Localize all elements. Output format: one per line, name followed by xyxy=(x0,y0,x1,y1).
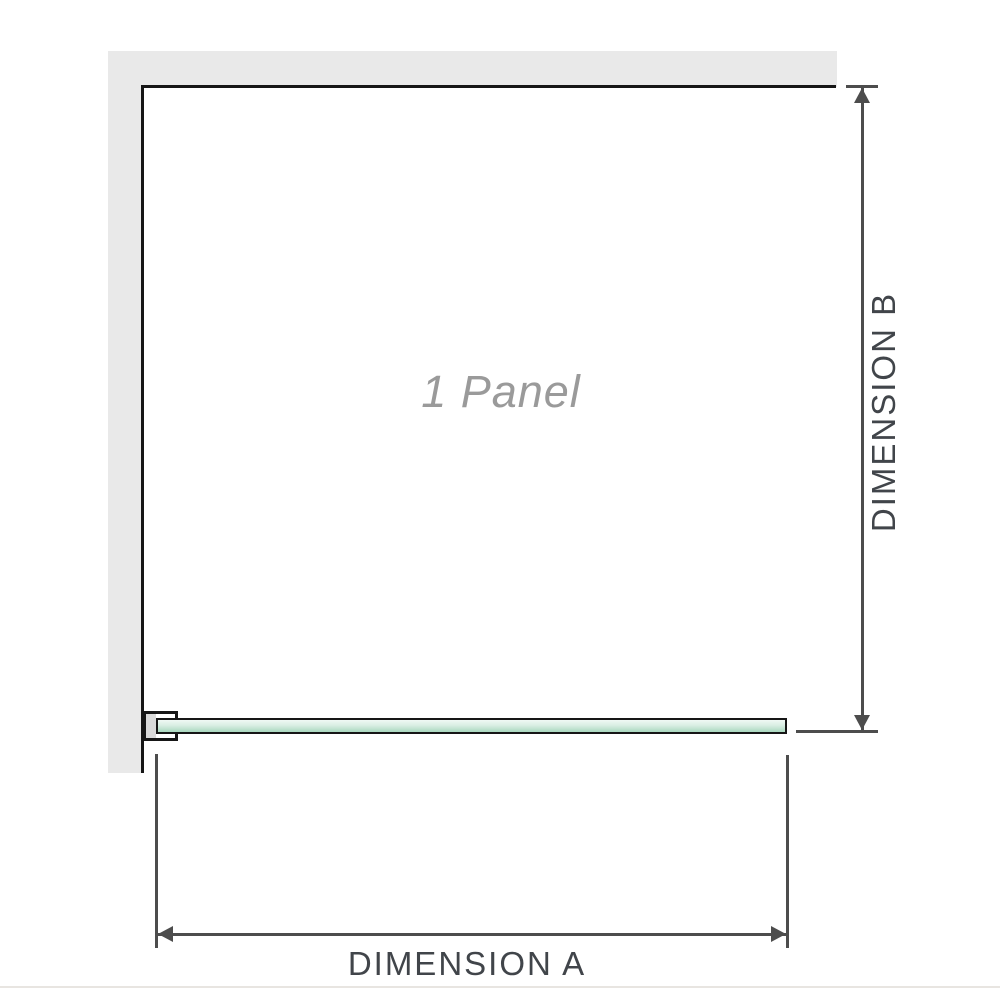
dimension-a-line xyxy=(157,933,788,936)
bottom-divider xyxy=(0,986,1000,988)
arrow-down-icon xyxy=(854,715,870,730)
bracket-pad xyxy=(146,714,156,738)
dimension-a-right-extension xyxy=(786,755,789,948)
wall-inner-edge-top xyxy=(141,85,836,88)
glass-panel xyxy=(156,718,787,734)
arrow-right-icon xyxy=(771,926,786,942)
dimension-a-label: DIMENSION A xyxy=(348,945,586,983)
dimension-diagram: 1 Panel DIMENSION B DIMENSION A xyxy=(0,0,1000,1000)
arrow-left-icon xyxy=(158,926,173,942)
dimension-b-bottom-tick xyxy=(796,730,878,733)
dimension-b-label: DIMENSION B xyxy=(865,292,903,532)
arrow-up-icon xyxy=(854,88,870,103)
dimension-a-left-extension xyxy=(155,754,158,948)
dimension-b-line xyxy=(861,87,864,732)
wall-inner-edge-left xyxy=(141,85,144,773)
wall-left-bar xyxy=(108,51,143,773)
wall-top-bar xyxy=(108,51,837,87)
panel-count-label: 1 Panel xyxy=(340,366,662,418)
